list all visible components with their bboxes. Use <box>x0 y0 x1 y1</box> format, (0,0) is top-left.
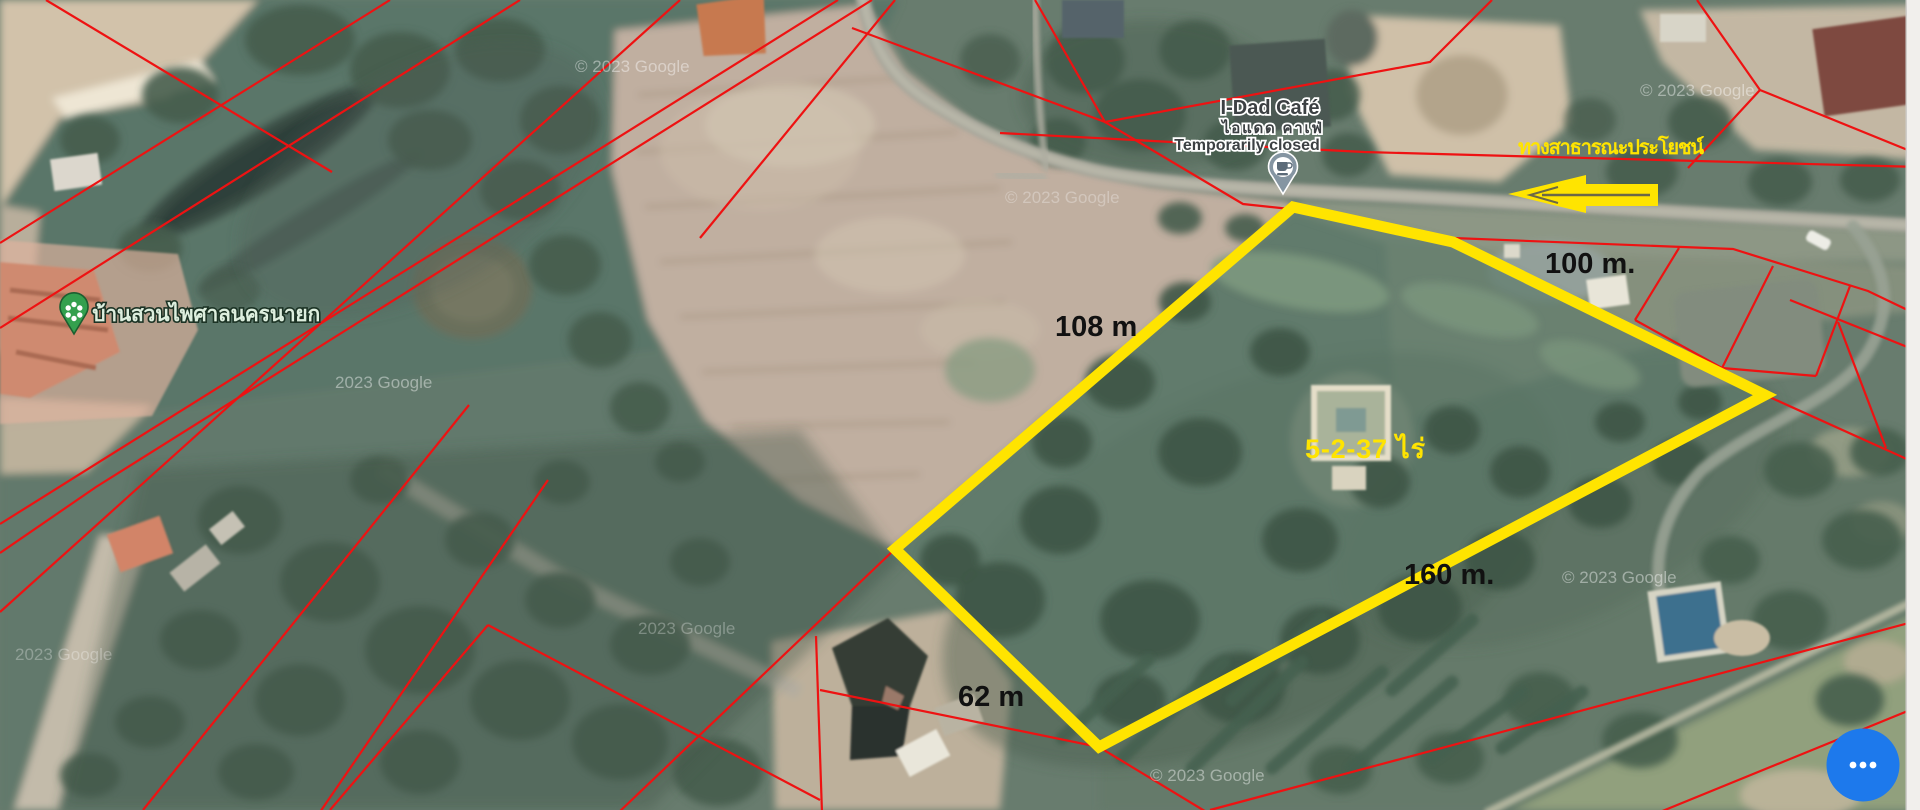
svg-text:62 m: 62 m <box>958 681 1024 713</box>
svg-text:© 2023 Google: © 2023 Google <box>575 57 690 76</box>
svg-text:160 m.: 160 m. <box>1404 559 1494 591</box>
svg-text:Temporarily closed: Temporarily closed <box>1174 137 1320 154</box>
svg-text:100 m.: 100 m. <box>1545 248 1635 280</box>
svg-text:I-Dad Café: I-Dad Café <box>1221 97 1320 119</box>
svg-text:ทางสาธารณะประโยชน์: ทางสาธารณะประโยชน์ <box>1518 135 1704 159</box>
svg-text:2023 Google: 2023 Google <box>638 619 735 638</box>
svg-text:© 2023 Google: © 2023 Google <box>1640 81 1755 100</box>
svg-text:© 2023 Google: © 2023 Google <box>1562 568 1677 587</box>
svg-text:108 m: 108 m <box>1055 311 1137 343</box>
svg-text:บ้านสวนไพศาลนครนายก: บ้านสวนไพศาลนครนายก <box>92 301 320 326</box>
svg-text:2023 Google: 2023 Google <box>335 373 432 392</box>
svg-text:2023 Google: 2023 Google <box>15 645 112 664</box>
svg-text:© 2023 Google: © 2023 Google <box>1005 188 1120 207</box>
svg-text:ไอแดด คาเฟ่: ไอแดด คาเฟ่ <box>1220 118 1322 137</box>
svg-text:© 2023 Google: © 2023 Google <box>1150 766 1265 785</box>
svg-text:5-2-37 ไร่: 5-2-37 ไร่ <box>1305 433 1425 464</box>
